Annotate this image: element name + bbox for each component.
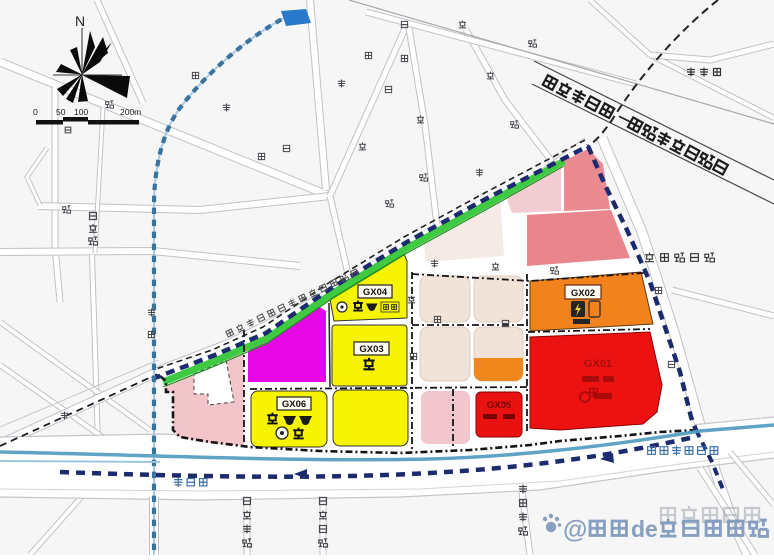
svg-text:de: de <box>631 516 658 542</box>
svg-text:N: N <box>75 13 85 29</box>
svg-text:200m: 200m <box>120 107 141 117</box>
svg-text:GX06: GX06 <box>282 399 306 410</box>
svg-text:0: 0 <box>33 107 38 117</box>
svg-text:GX02: GX02 <box>571 288 595 299</box>
svg-text:GX03: GX03 <box>359 344 383 355</box>
svg-text:50: 50 <box>56 107 66 117</box>
svg-text:@: @ <box>563 516 587 544</box>
svg-text:GX05: GX05 <box>487 400 512 411</box>
svg-text:100: 100 <box>74 107 88 117</box>
svg-text:GX04: GX04 <box>363 287 388 298</box>
svg-text:GX01: GX01 <box>584 358 612 370</box>
